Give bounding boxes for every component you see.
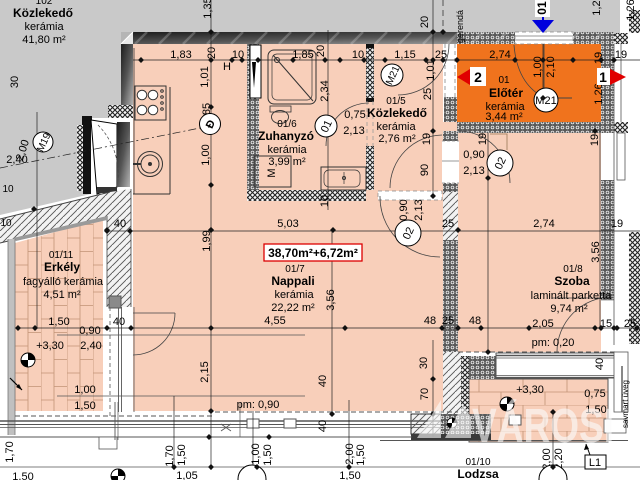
svg-text:70: 70 [419, 388, 431, 400]
svg-text:25: 25 [422, 88, 434, 100]
svg-text:48: 48 [469, 315, 481, 327]
svg-text:01: 01 [535, 1, 549, 15]
svg-text:1,26: 1,26 [591, 0, 603, 16]
svg-text:1,01: 1,01 [425, 59, 437, 80]
svg-text:3,44 m²: 3,44 m² [485, 111, 523, 123]
svg-text:Közlekedő: Közlekedő [13, 6, 73, 20]
svg-text:48: 48 [424, 315, 436, 327]
svg-text:2,34: 2,34 [319, 80, 331, 101]
svg-text:1,50: 1,50 [262, 444, 274, 465]
svg-text:10: 10 [2, 184, 14, 195]
svg-text:kerámia: kerámia [24, 21, 64, 33]
svg-text:VÁROSI: VÁROSI [472, 399, 614, 453]
svg-text:1,00: 1,00 [74, 384, 95, 396]
svg-text:1,50: 1,50 [12, 471, 33, 480]
svg-text:1,01: 1,01 [199, 66, 211, 87]
svg-text:1,05: 1,05 [176, 470, 197, 480]
svg-text:20: 20 [419, 16, 431, 28]
svg-text:M21: M21 [535, 95, 556, 107]
svg-text:4,51 m²: 4,51 m² [43, 289, 81, 301]
svg-text:41,80 m²: 41,80 m² [22, 34, 66, 46]
svg-text:1,50: 1,50 [355, 444, 367, 465]
svg-text:40: 40 [114, 218, 126, 230]
svg-text:L1: L1 [589, 457, 601, 469]
svg-text:25: 25 [442, 218, 454, 230]
svg-text:30: 30 [9, 76, 21, 88]
svg-text:3,99 m²: 3,99 m² [268, 156, 306, 168]
svg-text:2,05: 2,05 [532, 318, 553, 330]
svg-text:40: 40 [594, 358, 606, 370]
svg-text:kerámia: kerámia [376, 121, 416, 133]
svg-text:40: 40 [317, 375, 329, 387]
svg-text:1,83: 1,83 [170, 49, 191, 61]
svg-text:Közlekedő: Közlekedő [367, 106, 427, 120]
svg-text:22,22 m²: 22,22 m² [271, 302, 315, 314]
svg-text:38,70m²+6,72m²: 38,70m²+6,72m² [268, 246, 358, 260]
svg-text:1,50: 1,50 [74, 400, 95, 412]
svg-text:10: 10 [0, 218, 12, 229]
svg-text:0,90: 0,90 [398, 199, 410, 220]
svg-text:25: 25 [442, 315, 454, 327]
svg-text:19: 19 [421, 133, 433, 145]
svg-text:1,26: 1,26 [593, 83, 605, 104]
svg-text:1,00: 1,00 [250, 443, 262, 464]
svg-text:2,40: 2,40 [80, 340, 101, 352]
svg-text:2,15: 2,15 [199, 361, 211, 382]
svg-text:0,75: 0,75 [584, 388, 605, 400]
svg-text:fagyálló kerámia: fagyálló kerámia [23, 276, 104, 288]
svg-text:19: 19 [615, 49, 627, 61]
svg-text:20: 20 [315, 45, 327, 57]
svg-text:laminált parketta: laminált parketta [531, 290, 613, 302]
svg-text:2,40: 2,40 [6, 154, 27, 166]
svg-text:Erkély: Erkély [44, 260, 80, 274]
svg-text:3,56: 3,56 [590, 241, 602, 262]
svg-text:kerámia: kerámia [267, 144, 307, 156]
svg-text:M: M [266, 168, 278, 177]
svg-text:01: 01 [498, 75, 510, 86]
svg-text:Nappali: Nappali [271, 274, 314, 288]
svg-text:40: 40 [113, 316, 125, 328]
svg-text:40: 40 [317, 420, 329, 432]
svg-text:1,26: 1,26 [625, 0, 637, 21]
svg-text:0,90: 0,90 [463, 149, 484, 161]
svg-text:savmart üveg: savmart üveg [621, 380, 630, 428]
svg-text:4,55: 4,55 [264, 315, 285, 327]
svg-text:+3,30: +3,30 [516, 384, 544, 396]
svg-text:Lodzsa: Lodzsa [457, 467, 499, 480]
svg-text:1,00: 1,00 [200, 144, 212, 165]
svg-text:2,13: 2,13 [413, 199, 425, 220]
svg-text:1,50: 1,50 [176, 444, 188, 465]
svg-text:2,74: 2,74 [489, 49, 510, 61]
svg-text:20: 20 [206, 47, 218, 59]
svg-text:19: 19 [589, 134, 601, 146]
svg-text:2,13: 2,13 [463, 165, 484, 177]
svg-text:2: 2 [474, 69, 482, 85]
svg-text:1,70: 1,70 [4, 441, 16, 462]
svg-text:1,85: 1,85 [292, 49, 313, 61]
svg-text:1: 1 [599, 69, 607, 85]
svg-text:3,56: 3,56 [325, 289, 337, 310]
svg-text:kerámia: kerámia [274, 289, 314, 301]
svg-text:0,90: 0,90 [79, 325, 100, 337]
svg-text:pm: 0,20: pm: 0,20 [532, 337, 575, 349]
svg-text:2,13: 2,13 [343, 125, 364, 137]
svg-text:Szoba: Szoba [554, 274, 590, 288]
svg-text:Zuhanyzó: Zuhanyzó [258, 129, 314, 143]
svg-text:0,75: 0,75 [344, 109, 365, 121]
svg-text:10: 10 [319, 195, 331, 207]
svg-text:gerendá: gerendá [455, 10, 465, 43]
svg-text:90: 90 [419, 164, 431, 176]
svg-text:1,50: 1,50 [339, 470, 360, 480]
svg-text:30: 30 [418, 357, 430, 369]
svg-text:1,99: 1,99 [201, 230, 213, 251]
svg-text:19: 19 [593, 52, 605, 64]
svg-text:H: H [223, 61, 231, 73]
svg-text:1,50: 1,50 [48, 316, 69, 328]
svg-text:2,76 m²: 2,76 m² [378, 133, 416, 145]
svg-text:19: 19 [611, 218, 623, 230]
svg-text:pm: 0,90: pm: 0,90 [237, 399, 280, 411]
svg-text:2,10: 2,10 [545, 56, 557, 77]
svg-text:2,74: 2,74 [533, 218, 554, 230]
svg-text:1,15: 1,15 [394, 49, 415, 61]
svg-text:1,70: 1,70 [164, 445, 176, 466]
svg-text:19: 19 [477, 133, 489, 145]
svg-text:Előtér: Előtér [489, 86, 523, 100]
svg-text:5,03: 5,03 [277, 218, 298, 230]
svg-text:+3,30: +3,30 [36, 340, 64, 352]
svg-text:1,35: 1,35 [202, 0, 214, 19]
svg-text:9,74 m²: 9,74 m² [550, 303, 588, 315]
